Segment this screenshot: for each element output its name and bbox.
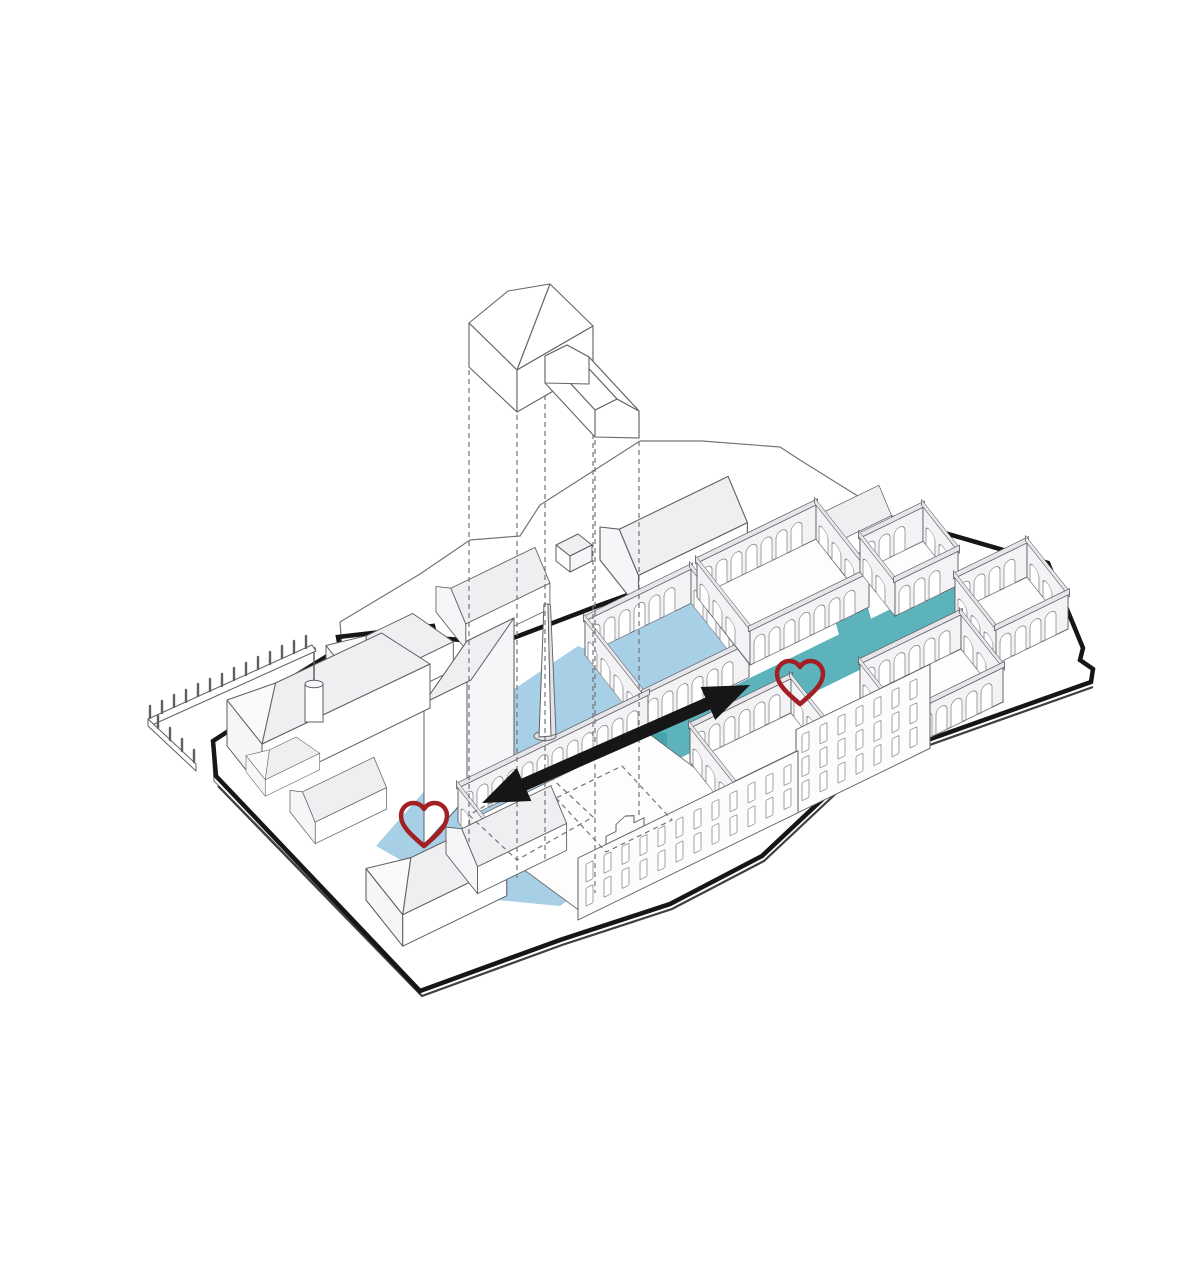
diagram-canvas [0, 0, 1200, 1267]
floating-building [469, 284, 639, 438]
urban-axonometric-diagram [0, 0, 1200, 1267]
